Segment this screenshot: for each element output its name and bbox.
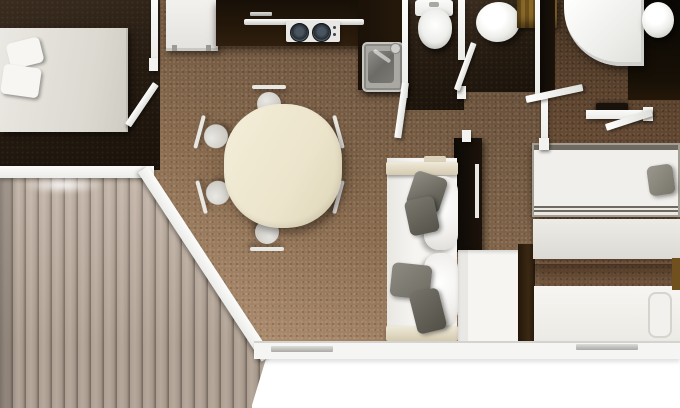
kitchen-sink: [362, 42, 404, 92]
floorplan-render: [0, 0, 680, 408]
door-frame-post: [539, 138, 549, 150]
bed-frame-rail: [534, 206, 678, 215]
flush-button: [429, 2, 439, 7]
single-bed-bottom: [534, 286, 680, 342]
wood-trim: [672, 258, 680, 290]
patio-door-handle: [271, 346, 333, 352]
bed-pillow: [0, 64, 42, 99]
bed-pillow-outline: [648, 292, 672, 338]
hob-knob: [333, 33, 336, 36]
bed-base: [533, 219, 680, 259]
tall-cabinet: [166, 0, 218, 51]
single-bed-top: [532, 143, 680, 217]
shelf-bracket: [475, 164, 479, 218]
window-handle: [576, 344, 638, 350]
hob-knob: [333, 26, 336, 29]
floor-shadow: [533, 264, 680, 284]
bed-frame-rail: [534, 145, 678, 150]
double-bed: [0, 28, 128, 132]
cabinet-foot: [206, 45, 211, 51]
drawer-handle: [250, 12, 272, 16]
hob: [286, 21, 340, 42]
dining-table: [224, 104, 342, 228]
door-frame-post: [462, 130, 471, 142]
interior-wall-dark: [540, 0, 555, 96]
faucet: [390, 43, 401, 54]
burner: [312, 23, 331, 42]
shower-room-basin: [642, 2, 674, 38]
interior-wall: [458, 0, 465, 60]
interior-wall: [151, 0, 158, 60]
toilet-bowl: [418, 9, 452, 49]
burner: [290, 23, 309, 42]
window-light-glow: [22, 176, 104, 194]
grey-pillow: [646, 163, 676, 196]
interior-wall: [541, 94, 548, 144]
door-frame-post: [149, 58, 158, 71]
storage-unit: [458, 250, 520, 342]
cabinet-foot: [172, 45, 177, 51]
